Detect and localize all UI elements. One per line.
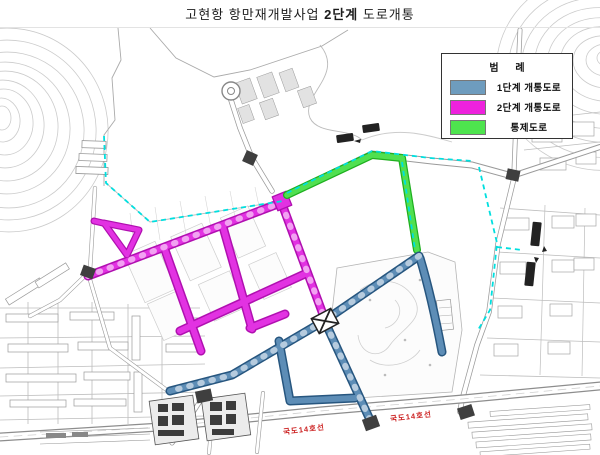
title-prefix: 고현항 항만재개발사업: [185, 7, 324, 22]
buildings-peninsula: [235, 68, 317, 123]
legend-row-phase2: 2단계 개통도로: [450, 100, 572, 114]
map-page: 고현항 항만재개발사업 2단계 도로개통 국도14호선 국도14호선 범 례 1…: [0, 0, 600, 455]
pier-docks: [76, 141, 108, 175]
title-bold: 2단계: [324, 7, 358, 22]
legend-label-control: 통제도로: [486, 120, 572, 134]
buildings-bottomright-strips: [468, 405, 592, 455]
shoreline-outlines: [104, 28, 452, 222]
legend-title: 범 례: [449, 59, 572, 74]
page-title: 고현항 항만재개발사업 2단계 도로개통: [0, 4, 600, 23]
legend-swatch-phase2: [450, 100, 486, 115]
roundabout: [222, 82, 240, 100]
legend-label-phase2: 2단계 개통도로: [486, 100, 572, 114]
legend-label-phase1: 1단계 개통도로: [486, 80, 572, 94]
legend-box: 범 례 1단계 개통도로 2단계 개통도로 통제도로: [441, 53, 573, 139]
legend-row-phase1: 1단계 개통도로: [450, 80, 572, 94]
title-divider: [0, 27, 600, 28]
buildings-right: [494, 122, 596, 356]
control-roads: [287, 155, 417, 250]
title-suffix: 도로개통: [358, 7, 414, 22]
legend-swatch-phase1: [450, 80, 486, 95]
legend-row-control: 통제도로: [450, 120, 572, 134]
legend-swatch-control: [450, 120, 486, 135]
